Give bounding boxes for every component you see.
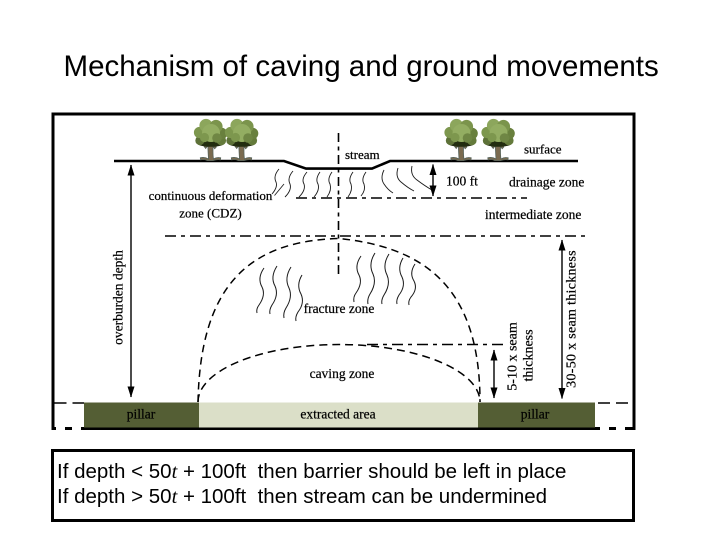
svg-text:30-50 x seam thickness: 30-50 x seam thickness: [565, 250, 580, 388]
svg-text:pillar: pillar: [127, 407, 156, 422]
svg-text:surface: surface: [524, 142, 562, 157]
svg-text:thickness: thickness: [522, 329, 537, 381]
svg-text:fracture zone: fracture zone: [304, 301, 375, 316]
svg-text:caving zone: caving zone: [310, 366, 375, 381]
svg-text:5-10 x seam: 5-10 x seam: [506, 322, 521, 391]
svg-text:extracted area: extracted area: [300, 407, 375, 422]
svg-text:overburden depth: overburden depth: [111, 250, 126, 345]
svg-text:100 ft: 100 ft: [446, 174, 478, 189]
svg-text:stream: stream: [345, 147, 380, 162]
svg-text:intermediate zone: intermediate zone: [485, 207, 581, 222]
svg-text:continuous deformation: continuous deformation: [149, 188, 273, 203]
svg-text:drainage zone: drainage zone: [509, 175, 584, 190]
svg-text:zone (CDZ): zone (CDZ): [179, 206, 241, 221]
svg-text:pillar: pillar: [521, 407, 550, 422]
